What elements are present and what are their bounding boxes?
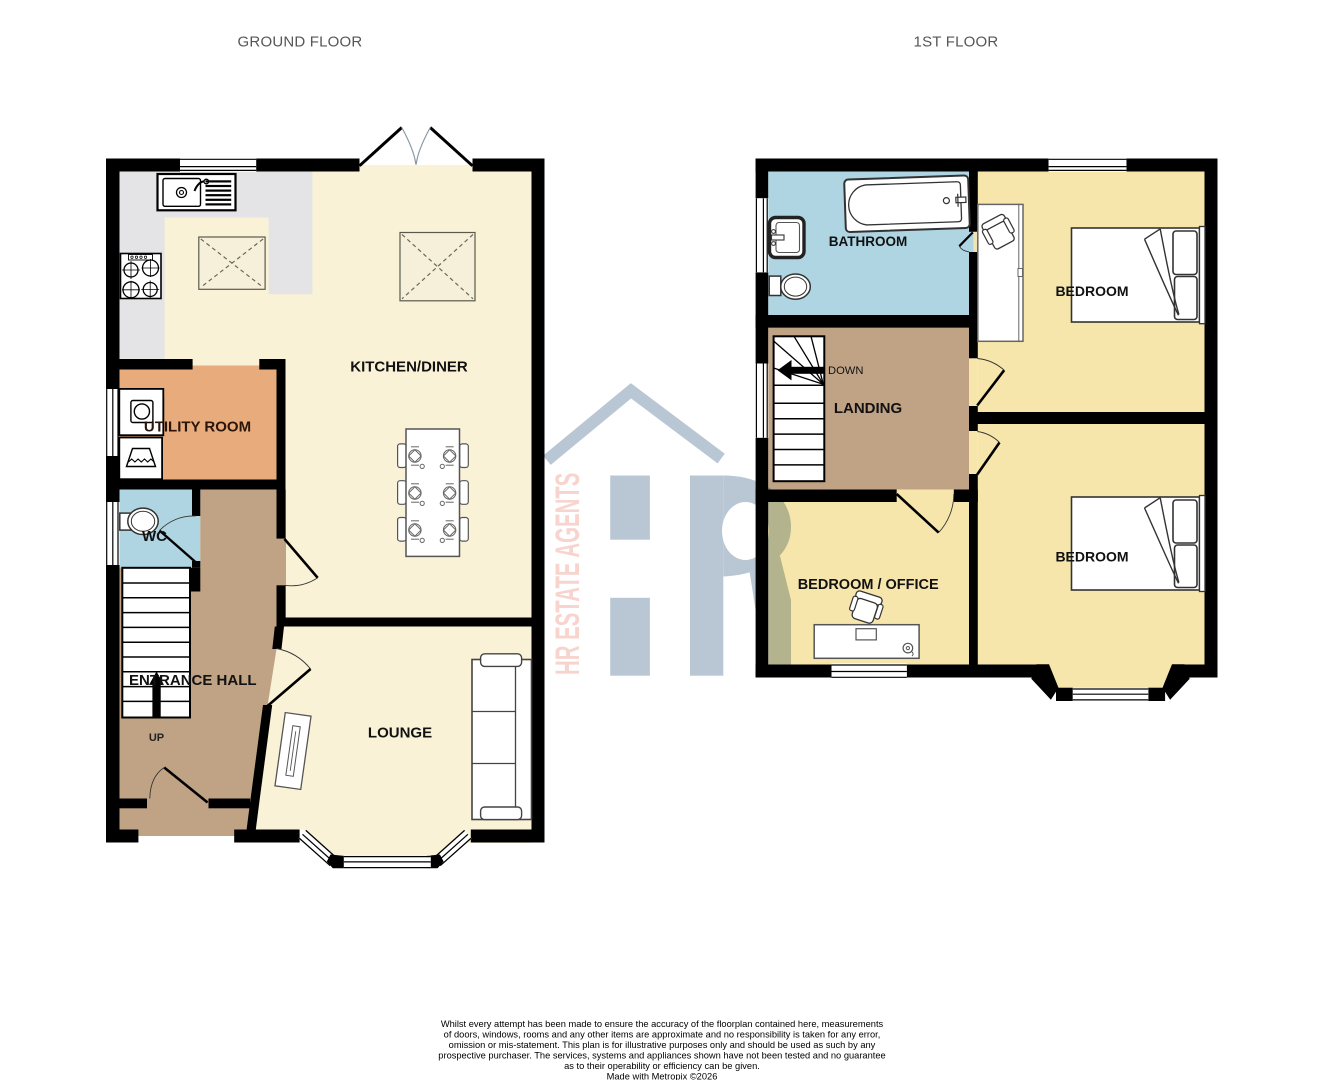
svg-text:of doors, windows, rooms and a: of doors, windows, rooms and any other i… [444,1029,881,1039]
svg-text:omission or mis-statement. Thi: omission or mis-statement. This plan is … [449,1040,876,1050]
svg-text:prospective purchaser. The ser: prospective purchaser. The services, sys… [438,1050,885,1060]
svg-text:Made with Metropix ©2026: Made with Metropix ©2026 [607,1071,718,1080]
svg-text:HR ESTATE AGENTS: HR ESTATE AGENTS [549,473,587,675]
svg-text:BEDROOM: BEDROOM [1055,283,1128,299]
svg-text:GROUND FLOOR: GROUND FLOOR [238,34,363,51]
svg-text:BEDROOM / OFFICE: BEDROOM / OFFICE [798,577,939,593]
svg-text:as to their operability or eff: as to their operability or efficiency ca… [564,1061,760,1071]
svg-text:KITCHEN/DINER: KITCHEN/DINER [350,359,468,376]
svg-text:WC: WC [142,528,167,545]
svg-text:UP: UP [149,732,164,744]
svg-text:LANDING: LANDING [834,400,902,417]
svg-text:LOUNGE: LOUNGE [368,725,432,742]
svg-text:ENTRANCE HALL: ENTRANCE HALL [129,672,257,689]
svg-text:DOWN: DOWN [828,365,863,377]
svg-text:Whilst every attempt has been: Whilst every attempt has been made to en… [441,1019,884,1029]
svg-text:UTILITY ROOM: UTILITY ROOM [144,419,251,436]
svg-text:1ST FLOOR: 1ST FLOOR [914,34,999,51]
svg-text:BATHROOM: BATHROOM [829,234,908,249]
svg-text:BEDROOM: BEDROOM [1055,549,1128,565]
